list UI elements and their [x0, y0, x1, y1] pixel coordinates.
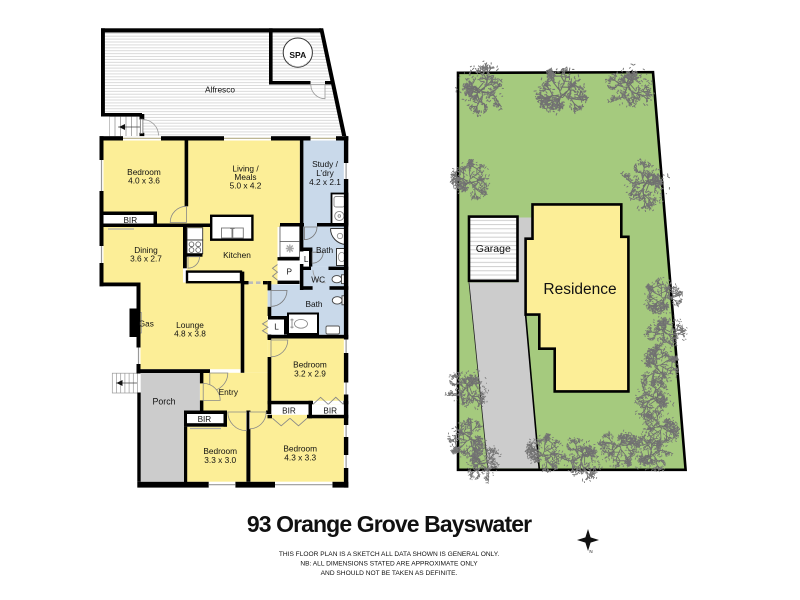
svg-text:Entry: Entry [219, 387, 239, 397]
svg-text:Alfresco: Alfresco [205, 85, 235, 95]
svg-text:AND SHOULD NOT BE TAKEN AS DEF: AND SHOULD NOT BE TAKEN AS DEFINITE. [321, 570, 458, 577]
svg-text:L: L [304, 255, 309, 264]
svg-text:BIR: BIR [198, 415, 212, 424]
svg-text:Kitchen: Kitchen [223, 250, 251, 260]
svg-text:4.8 x 3.8: 4.8 x 3.8 [174, 329, 206, 339]
svg-text:N: N [589, 549, 592, 554]
svg-text:BIR: BIR [123, 216, 137, 225]
svg-text:L: L [274, 322, 279, 331]
svg-text:Residence: Residence [543, 281, 616, 298]
svg-text:Bath: Bath [305, 299, 322, 309]
svg-text:Porch: Porch [153, 397, 176, 407]
svg-text:4.3 x 3.3: 4.3 x 3.3 [284, 452, 316, 462]
svg-text:4.0 x 3.6: 4.0 x 3.6 [128, 176, 160, 186]
svg-text:THIS FLOOR PLAN IS A SKETCH AL: THIS FLOOR PLAN IS A SKETCH ALL DATA SHO… [279, 551, 500, 558]
svg-text:SPA: SPA [289, 50, 306, 60]
svg-text:4.2 x 2.1: 4.2 x 2.1 [309, 177, 341, 187]
svg-text:Garage: Garage [476, 243, 511, 255]
svg-text:NB: ALL DIMENSIONS STATED ARE: NB: ALL DIMENSIONS STATED ARE APPROXIMAT… [300, 561, 478, 568]
svg-text:BIR: BIR [282, 406, 296, 415]
svg-text:Gas: Gas [139, 320, 154, 329]
svg-text:P: P [286, 267, 292, 276]
svg-text:5.0 x 4.2: 5.0 x 4.2 [230, 180, 262, 190]
svg-text:WC: WC [311, 274, 325, 284]
svg-text:3.3 x 3.0: 3.3 x 3.0 [204, 455, 236, 465]
svg-text:Bath: Bath [316, 245, 333, 255]
svg-text:93 Orange Grove Bayswater: 93 Orange Grove Bayswater [247, 511, 532, 537]
svg-text:3.6 x 2.7: 3.6 x 2.7 [130, 254, 162, 264]
svg-text:3.2 x 2.9: 3.2 x 2.9 [294, 368, 326, 378]
svg-text:BIR: BIR [323, 406, 337, 415]
